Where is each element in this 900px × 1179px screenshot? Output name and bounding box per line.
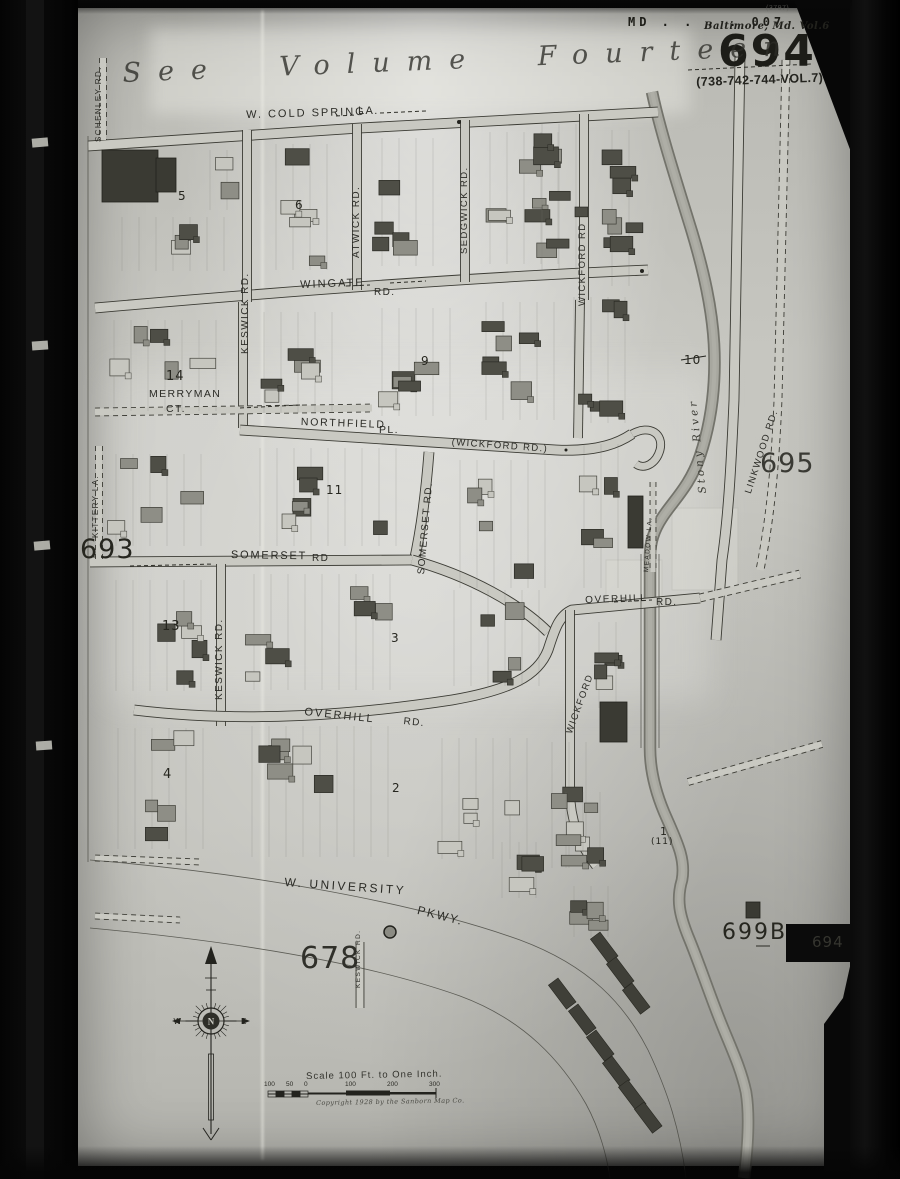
block-number-1-sub: (11) [651,838,673,847]
street-label-wingate: WINGATE [300,278,365,291]
dark-building [156,158,176,192]
block-number-2: 2 [392,782,401,794]
scale-tick-label: 200 [387,1081,398,1088]
traffic-circle [384,926,396,938]
adjacent-sheet-678: 678 [300,944,360,974]
compass-east-letter: E [241,1017,246,1026]
scale-tick-label: 0 [304,1081,308,1088]
street-label-somerset: SOMERSET [231,550,307,562]
street-label-somerset-type: RD [312,554,329,564]
street-label-wingate-type: RD. [374,288,395,298]
compass-west-letter: W [173,1017,181,1026]
film-notch [32,137,49,147]
street-label-atwick: ATWICK RD. [352,186,362,258]
street-label-northfield: NORTHFIELD [301,417,386,430]
street-label-keswick-stub: KESWICK RD. [356,930,363,988]
film-tab-number: 694 [812,933,844,951]
film-notch [36,740,53,750]
scale-title: Scale 100 Ft. to One Inch. [306,1070,443,1082]
compass-rose: NWE [172,946,250,1140]
adjacent-sheet-699b: 699B [722,922,787,944]
film-corner-bottom-right [824,962,900,1179]
adjacent-sheet-693: 693 [80,536,135,563]
block-number-13: 13 [162,620,181,633]
scale-tick-label: 50 [286,1081,294,1088]
block-number-11: 11 [326,484,343,496]
street-label-wickford-upper: WICKFORD RD [578,223,588,306]
block-number-1: 1 [660,826,668,837]
street-label-cold-spring-type: LA. [358,106,379,117]
block-number-9: 9 [421,355,430,367]
street-label-northfield-type: PL. [379,425,399,436]
street-label-merryman-type: CT. [166,404,186,415]
film-notch [34,540,51,550]
block-number-3: 3 [391,632,400,644]
corner-note: (3797) [766,5,789,12]
scanned-sanborn-map-sheet: NWE100500100200300 MD . . . . 007 Baltim… [0,0,900,1179]
dark-building [628,496,643,548]
street-label-keswick-mid: KESWICK RD. [215,618,225,700]
block-number-10: 10 [684,354,701,366]
block-number-6: 6 [295,199,304,211]
street-label-schenley: SCHENLEY RD. [95,66,103,142]
film-notch [32,340,49,350]
dark-building [600,702,627,742]
dark-building [102,150,158,202]
street-label-overhill-east-type: RD. [656,598,677,608]
film-index-tab: 694 [786,924,852,962]
scale-tick-label: 300 [429,1081,440,1088]
scale-tick-label: 100 [345,1081,356,1088]
street-label-keswick-upper: KESWICK RD. [241,272,251,354]
street-label-sedgwick: SEDGWICK RD. [460,166,470,254]
scale-tick-label: 100 [264,1081,275,1088]
dark-building [746,902,760,918]
block-number-14: 14 [166,370,185,383]
adjacent-sheet-695: 695 [760,450,815,477]
map-canvas: NWE100500100200300 [0,0,900,1179]
street-label-merryman: MERRYMAN [149,389,221,400]
compass-north-letter: N [208,1017,215,1027]
street-label-kittery: KITTERY LA. [92,475,100,538]
block-number-5: 5 [178,190,187,202]
street-label-overhill-west-type: RD. [403,717,425,729]
scale-bar: 100500100200300 [264,1081,440,1098]
block-number-4: 4 [163,768,172,781]
